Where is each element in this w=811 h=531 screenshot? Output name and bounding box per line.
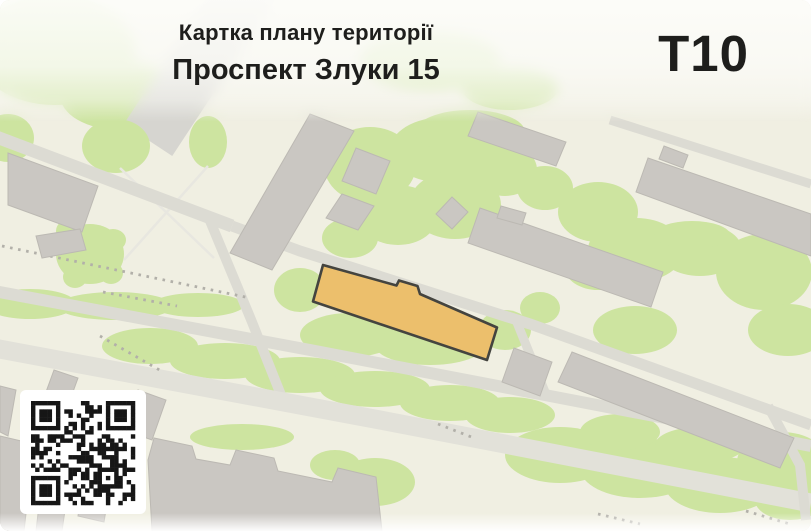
card-title: Проспект Злуки 15 <box>0 54 612 87</box>
green-area <box>189 116 227 168</box>
qr-code <box>20 390 146 514</box>
green-area <box>190 424 294 450</box>
territory-plan-card: Картка плану території Проспект Злуки 15… <box>0 0 811 531</box>
green-area <box>100 229 126 251</box>
green-area <box>63 266 87 288</box>
green-area <box>465 397 555 433</box>
header-titles: Картка плану території Проспект Злуки 15 <box>0 20 612 87</box>
green-area <box>152 293 244 317</box>
card-subtitle: Картка плану території <box>0 20 612 46</box>
green-area <box>82 119 150 173</box>
green-area <box>99 262 123 284</box>
bottom-fade <box>0 513 811 531</box>
sheet-code: Т10 <box>658 24 749 83</box>
header: Картка плану території Проспект Злуки 15… <box>0 0 811 122</box>
green-area <box>654 221 730 249</box>
